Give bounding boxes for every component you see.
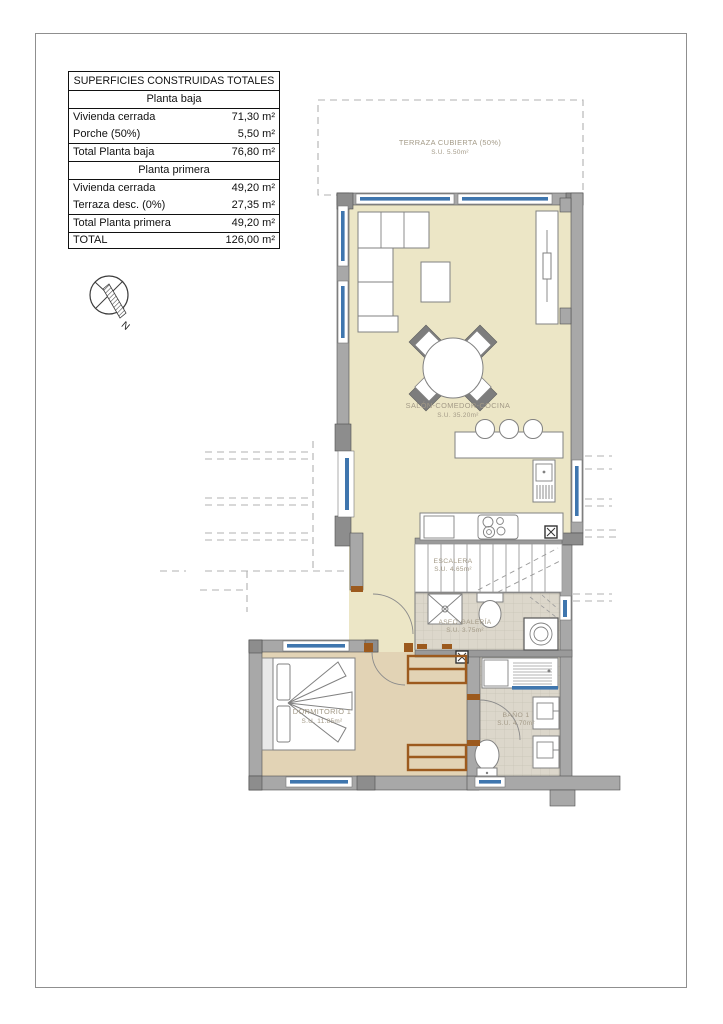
bathtub [482,658,558,690]
covered-terrace: TERRAZA CUBIERTA (50%) S.U. 5.50m² [318,100,583,195]
bathroom-sink [533,697,560,729]
room-area-bano: S.U. 4.70m² [497,720,535,727]
room-label-terraza: TERRAZA CUBIERTA (50%) [399,138,501,147]
room-area-salon: S.U. 35.20m² [437,412,479,419]
coffee-table [421,262,450,302]
room-label-aseo: ASEO-GALERÍA [438,617,491,626]
tv-unit [536,211,558,324]
bar-stool [524,420,543,439]
floor-plan: N TERRAZA CUBIERTA (50%) S.U. 5.50m² [0,0,723,1024]
room-area-escalera: S.U. 4.65m² [434,566,472,573]
room-area-terraza: S.U. 5.50m² [431,149,469,156]
junction-box-icon [545,526,557,538]
room-area-dormitorio: S.U. 11.85m² [301,718,342,725]
staircase: ESCALERA S.U. 4.65m² [415,544,562,592]
kitchen-sink [533,460,555,502]
room-area-aseo: S.U. 3.75m² [446,627,484,634]
dining-table [423,338,483,398]
room-label-bano: BAÑO 1 [503,710,530,719]
bar-stool [476,420,495,439]
bar-stool [500,420,519,439]
room-label-escalera: ESCALERA [434,558,473,565]
bathroom-sink [533,736,560,768]
washing-machine-icon [524,618,558,650]
upper-floor-projection-left [160,441,356,612]
compass-icon: N [90,276,131,333]
room-label-salon: SALÓN-COMEDOR-COCINA [406,401,511,410]
bed [262,658,355,750]
compass-north-label: N [119,320,132,333]
room-label-dormitorio: DORMITORIO 1 [293,707,352,716]
plan-sheet: SUPERFICIES CONSTRUIDAS TOTALES Planta b… [0,0,723,1024]
